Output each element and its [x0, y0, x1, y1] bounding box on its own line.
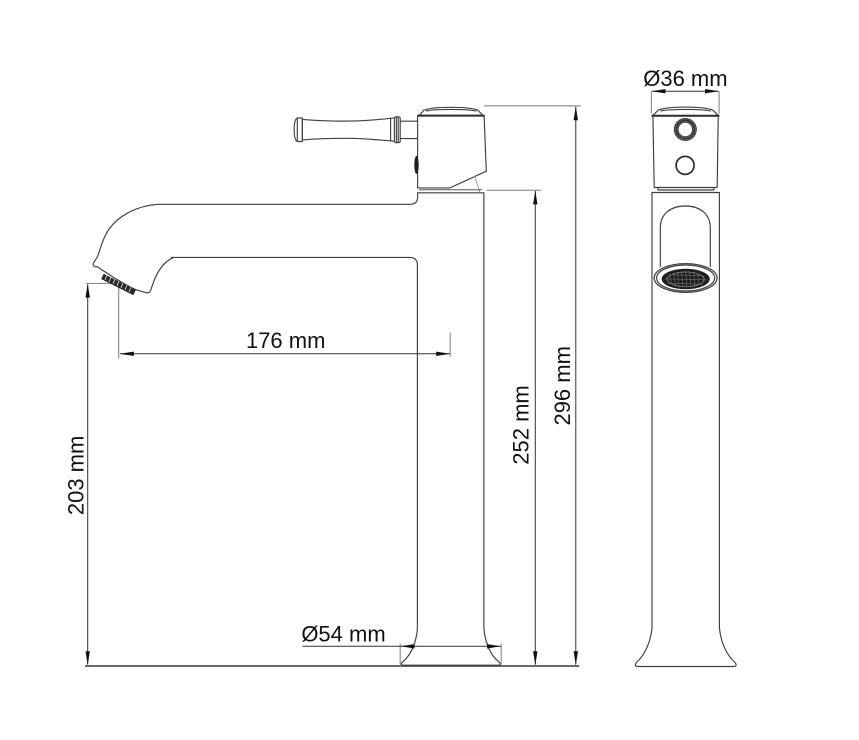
svg-text:Ø54 mm: Ø54 mm	[301, 622, 385, 647]
svg-text:176 mm: 176 mm	[246, 328, 325, 353]
svg-text:252 mm: 252 mm	[508, 385, 533, 464]
svg-text:203 mm: 203 mm	[64, 436, 89, 515]
svg-text:296 mm: 296 mm	[550, 346, 575, 425]
svg-text:Ø36 mm: Ø36 mm	[643, 66, 727, 91]
